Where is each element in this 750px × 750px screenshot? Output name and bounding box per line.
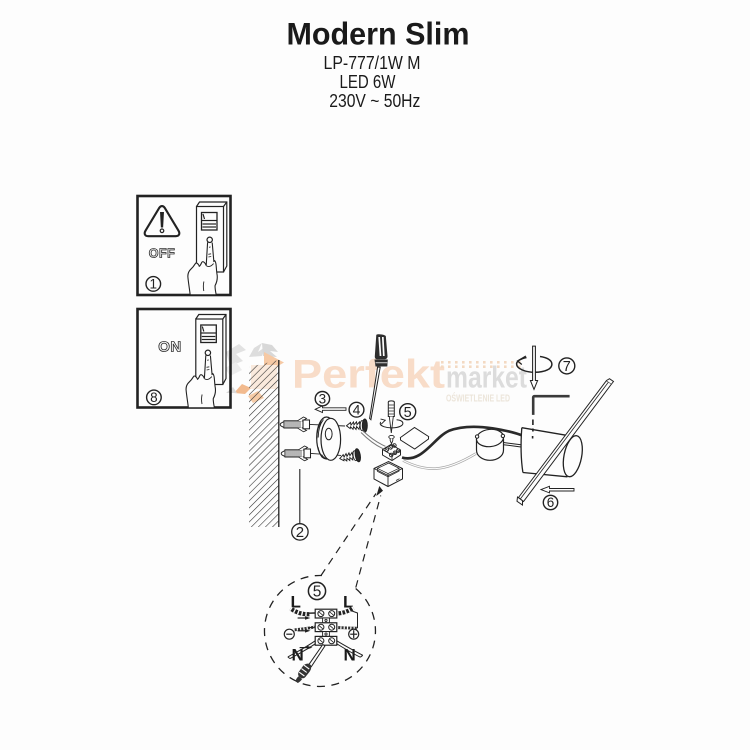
svg-text:Perfekt: Perfekt [292, 353, 445, 397]
svg-text:7: 7 [563, 359, 571, 375]
svg-text:6: 6 [547, 495, 555, 510]
svg-text:5: 5 [404, 405, 412, 421]
svg-text:market: market [446, 360, 527, 395]
svg-text:ON: ON [158, 339, 182, 356]
svg-text:LED 6W: LED 6W [340, 72, 396, 92]
svg-text:Modern Slim: Modern Slim [287, 16, 470, 52]
svg-text:4: 4 [353, 402, 361, 418]
svg-text:1: 1 [150, 277, 158, 292]
svg-text:LP-777/1W M: LP-777/1W M [324, 53, 421, 73]
svg-text:3: 3 [319, 392, 327, 407]
svg-text:2: 2 [296, 524, 304, 541]
svg-text:OŚWIETLENIE LED: OŚWIETLENIE LED [446, 392, 510, 405]
svg-text:8: 8 [150, 390, 158, 405]
svg-text:5: 5 [313, 583, 322, 600]
svg-text:OFF: OFF [149, 246, 176, 260]
svg-text:230V ~ 50Hz: 230V ~ 50Hz [329, 91, 420, 111]
